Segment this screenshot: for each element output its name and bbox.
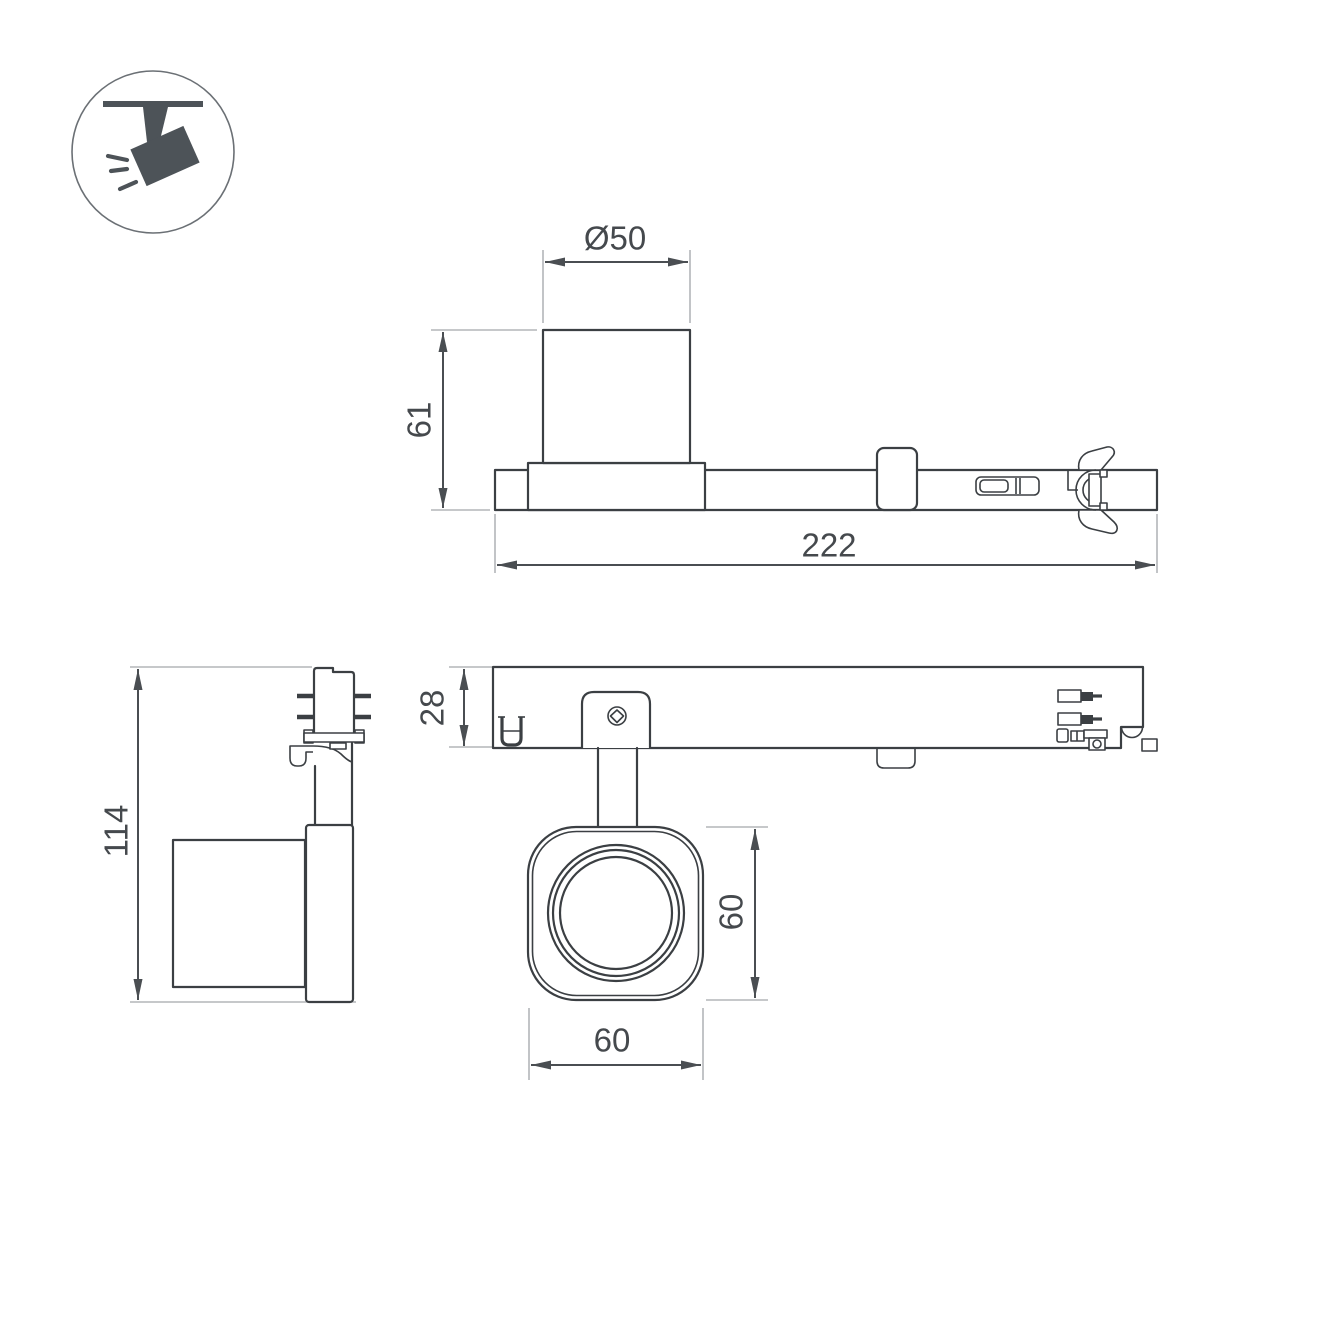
dim-label-head-width: 60	[594, 1024, 631, 1057]
dim-label-track-depth: 28	[416, 690, 449, 727]
technical-drawing-sheet: Ø50 61 222 114 28 60 60	[0, 0, 1331, 1331]
top-view	[449, 667, 1157, 827]
dim-track-depth	[460, 669, 469, 746]
slide-switch-detail	[976, 477, 1039, 495]
dim-total-height	[134, 669, 143, 1000]
lamp-head-bottom-view	[528, 827, 703, 1000]
side-view	[495, 330, 1157, 533]
dim-label-body-height: 61	[403, 402, 436, 439]
drawing-linework	[0, 0, 1331, 1331]
dim-lens-diameter	[543, 250, 690, 323]
front-view	[130, 667, 371, 1002]
track-spotlight-icon	[72, 71, 234, 233]
dim-label-head-height: 60	[715, 894, 748, 931]
dim-label-total-height: 114	[100, 805, 133, 858]
dim-label-lens-diameter: Ø50	[584, 222, 646, 255]
dim-label-total-length: 222	[801, 529, 856, 562]
